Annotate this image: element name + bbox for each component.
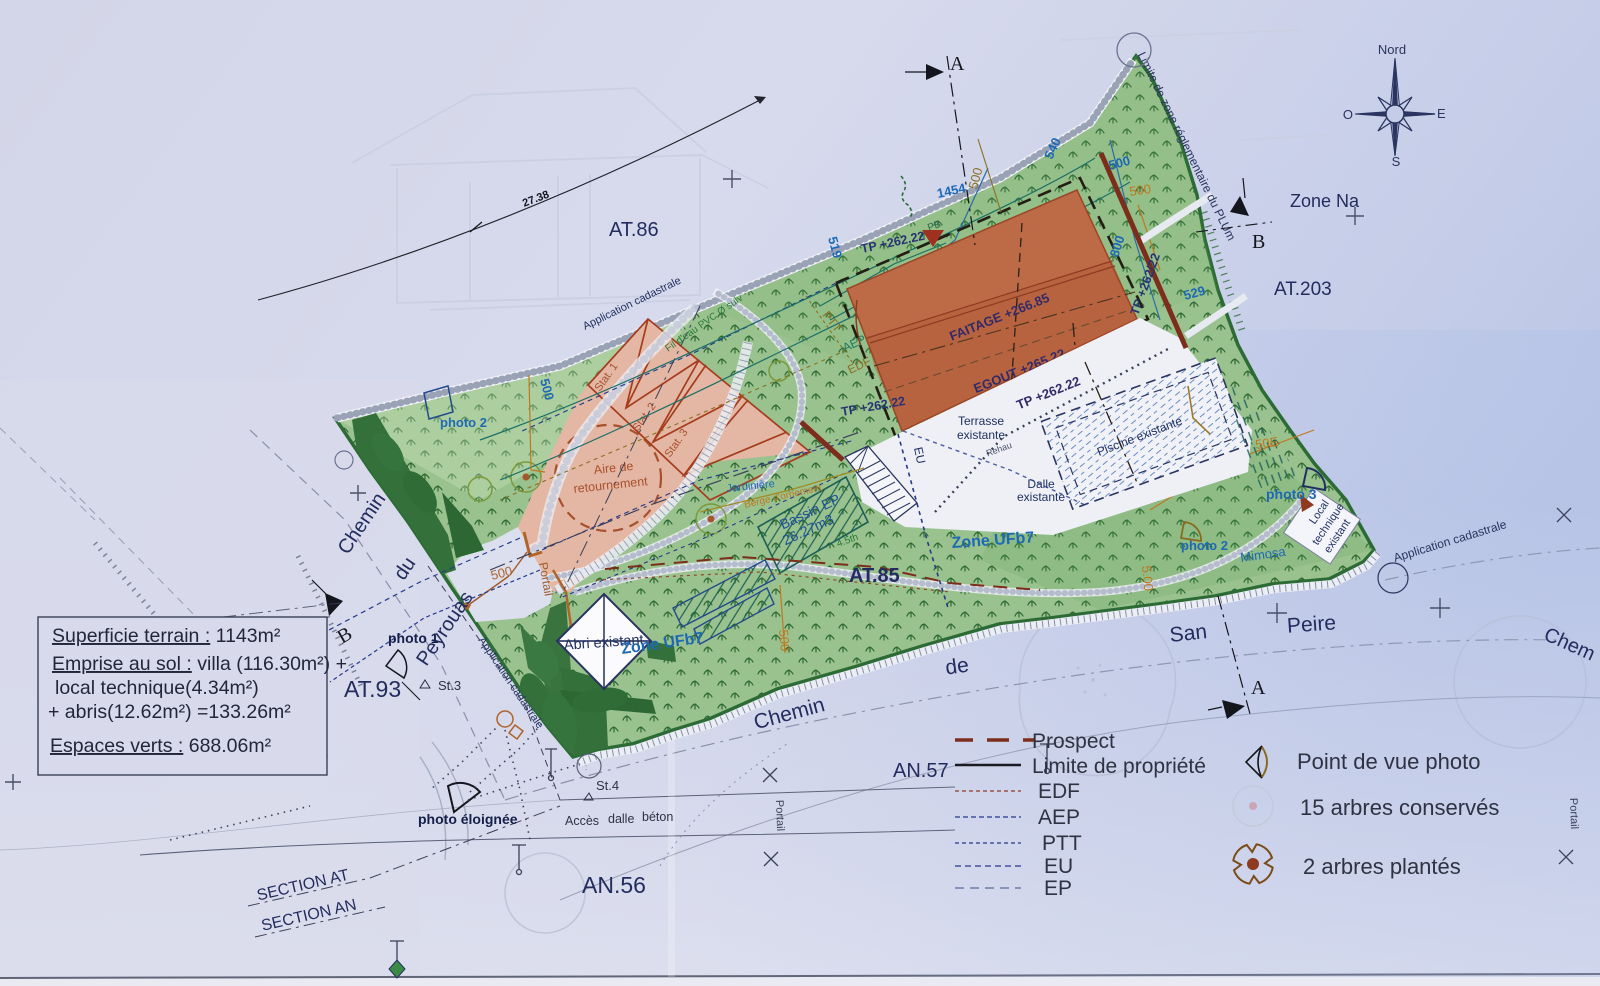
svg-text:A: A bbox=[1251, 677, 1266, 699]
svg-text:Espaces verts : 688.06m²: Espaces verts : 688.06m² bbox=[50, 735, 272, 757]
svg-text:Limite de propriété: Limite de propriété bbox=[1032, 755, 1206, 778]
svg-text:Point de vue photo: Point de vue photo bbox=[1297, 749, 1480, 774]
svg-text:San: San bbox=[1169, 620, 1209, 647]
svg-text:AN.57: AN.57 bbox=[893, 760, 949, 782]
svg-text:Prospect: Prospect bbox=[1032, 730, 1115, 753]
svg-text:AEP: AEP bbox=[1038, 806, 1080, 829]
svg-text:dalle: dalle bbox=[608, 812, 634, 826]
svg-text:Dalle: Dalle bbox=[1027, 477, 1055, 491]
svg-text:St.4: St.4 bbox=[596, 778, 619, 793]
svg-text:photo éloignée: photo éloignée bbox=[418, 811, 518, 827]
svg-text:2 arbres plantés: 2 arbres plantés bbox=[1303, 854, 1461, 879]
svg-text:+ abris(12.62m²) =133.26m²: + abris(12.62m²) =133.26m² bbox=[48, 701, 291, 723]
svg-text:photo 2: photo 2 bbox=[440, 415, 487, 430]
svg-text:500: 500 bbox=[1128, 181, 1152, 199]
svg-text:existante: existante bbox=[957, 428, 1005, 442]
svg-text:E: E bbox=[1437, 106, 1446, 121]
svg-text:Nord: Nord bbox=[1378, 42, 1406, 57]
svg-text:EU: EU bbox=[1044, 855, 1073, 878]
svg-text:Portail: Portail bbox=[1567, 798, 1580, 830]
svg-text:A: A bbox=[950, 53, 965, 75]
svg-text:photo 2: photo 2 bbox=[1181, 538, 1228, 553]
svg-text:béton: béton bbox=[642, 810, 673, 824]
svg-text:Zone Na: Zone Na bbox=[1290, 191, 1360, 211]
svg-text:AT.86: AT.86 bbox=[609, 219, 659, 241]
svg-text:AN.56: AN.56 bbox=[582, 872, 646, 898]
svg-text:Terrasse: Terrasse bbox=[958, 414, 1004, 428]
svg-text:B: B bbox=[1252, 231, 1265, 253]
svg-text:Superficie terrain : 1143m²: Superficie terrain : 1143m² bbox=[52, 625, 281, 647]
svg-text:photo 1: photo 1 bbox=[388, 630, 439, 646]
svg-text:Peire: Peire bbox=[1286, 611, 1337, 637]
svg-text:PTT: PTT bbox=[1042, 832, 1082, 855]
svg-text:EP: EP bbox=[1044, 877, 1072, 900]
svg-text:AT.203: AT.203 bbox=[1274, 279, 1332, 300]
svg-text:de: de bbox=[944, 654, 970, 680]
svg-text:EDF: EDF bbox=[1038, 780, 1080, 803]
svg-text:15 arbres conservés: 15 arbres conservés bbox=[1300, 795, 1499, 820]
svg-text:S: S bbox=[1392, 154, 1401, 169]
svg-text:AT.85: AT.85 bbox=[849, 565, 900, 587]
svg-text:500: 500 bbox=[776, 629, 793, 652]
svg-text:St.3: St.3 bbox=[438, 678, 461, 693]
svg-text:Portail: Portail bbox=[773, 800, 786, 832]
svg-text:local technique(4.34m²): local technique(4.34m²) bbox=[55, 677, 259, 699]
svg-text:photo 3: photo 3 bbox=[1266, 486, 1317, 502]
svg-text:Emprise au sol : villa (116.30: Emprise au sol : villa (116.30m²) + bbox=[52, 653, 347, 675]
svg-text:5.00: 5.00 bbox=[1139, 565, 1156, 592]
svg-text:AT.93: AT.93 bbox=[344, 676, 401, 702]
svg-text:existante: existante bbox=[1017, 490, 1065, 504]
svg-text::: : bbox=[585, 763, 587, 772]
svg-text:O: O bbox=[1343, 107, 1353, 122]
svg-text:Accès: Accès bbox=[565, 814, 599, 828]
